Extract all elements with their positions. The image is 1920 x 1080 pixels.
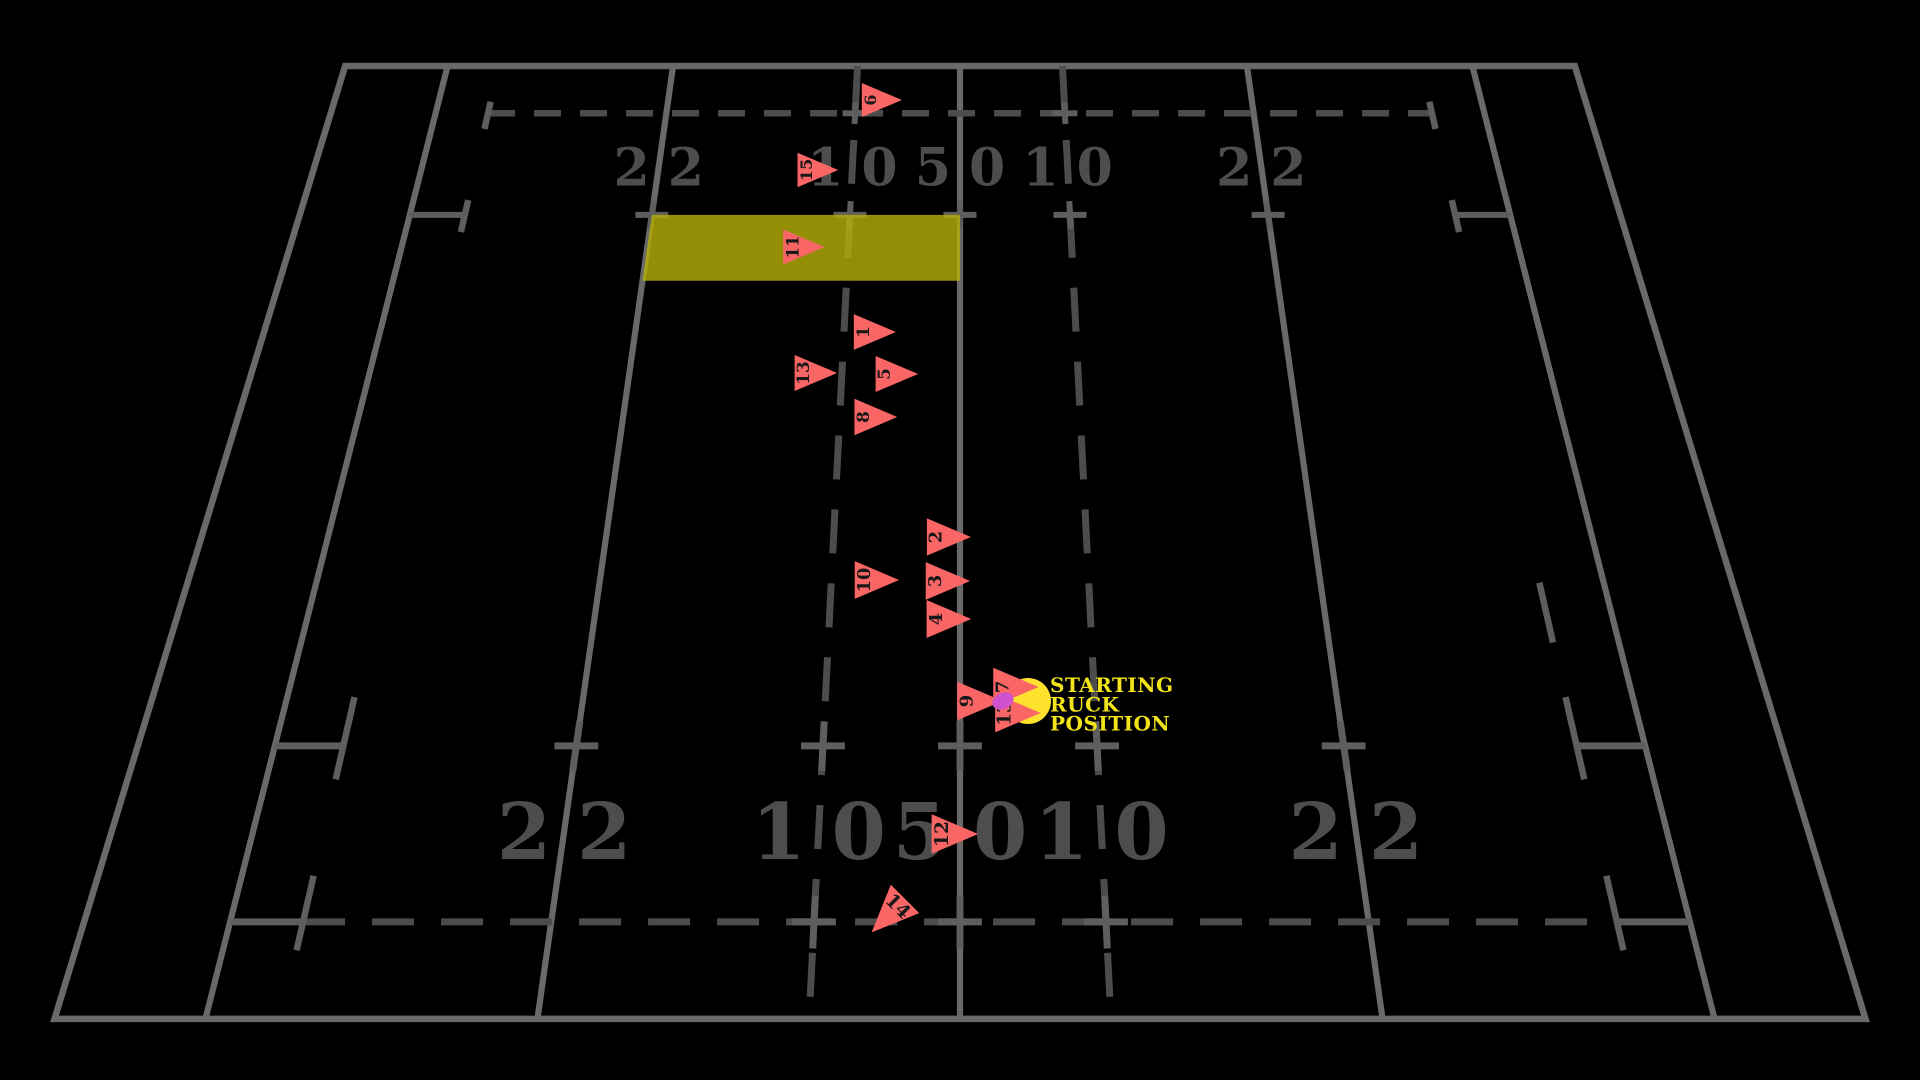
field-label-22-left-near: 2 bbox=[497, 787, 551, 878]
field-label-10-right-far: 0 bbox=[1077, 138, 1113, 199]
field-label-50-far: 5 bbox=[915, 138, 951, 199]
player-number: 3 bbox=[925, 575, 946, 587]
tick-cross bbox=[822, 721, 825, 771]
field-label-10-left-near: 1 bbox=[751, 787, 805, 878]
player-number: 13 bbox=[794, 361, 814, 385]
field-label-22-right-far: 2 bbox=[1270, 138, 1306, 199]
player-number: 9 bbox=[957, 695, 978, 708]
player-number: 10 bbox=[854, 568, 875, 593]
field-label-22-left-far: 2 bbox=[668, 138, 704, 199]
field-label-10-left-near: 0 bbox=[832, 787, 886, 878]
tick-cross bbox=[813, 896, 816, 949]
player-number: 11 bbox=[782, 236, 802, 259]
player-number: 5 bbox=[875, 368, 895, 380]
ruck-annotation-line-3: POSITION bbox=[1050, 712, 1170, 736]
field-label-22-right-far: 2 bbox=[1216, 138, 1252, 199]
tick-cross bbox=[1105, 896, 1108, 949]
field-label-22-left-far: 2 bbox=[614, 138, 650, 199]
player-number: 2 bbox=[927, 531, 947, 543]
field-label-22-right-near: 2 bbox=[1369, 787, 1423, 878]
tick-cross bbox=[1064, 103, 1065, 124]
tick-cross bbox=[855, 103, 856, 124]
player-number: 8 bbox=[854, 411, 874, 423]
player-number: 15 bbox=[797, 159, 816, 182]
player-number: 4 bbox=[926, 613, 947, 625]
field-label-50-far: 0 bbox=[969, 138, 1005, 199]
tick-cross bbox=[1266, 201, 1270, 229]
player-number: 6 bbox=[861, 94, 880, 105]
field-label-10-left-far: 0 bbox=[861, 138, 897, 199]
field-label-22-left-near: 2 bbox=[577, 787, 631, 878]
player-number: 12 bbox=[931, 821, 953, 847]
player-number: 7 bbox=[993, 681, 1014, 694]
field-label-10-right-near: 0 bbox=[1114, 787, 1168, 878]
player-number: 1 bbox=[853, 326, 873, 338]
pitch-canvas: 2210501022221050102261511113582103479131… bbox=[0, 0, 1920, 1080]
field-label-10-right-near: 1 bbox=[1034, 787, 1088, 878]
tick-cross bbox=[1069, 201, 1070, 229]
field-label-10-right-far: 1 bbox=[1022, 138, 1058, 199]
rugby-pitch-visualization: 2210501022221050102261511113582103479131… bbox=[0, 0, 1920, 1080]
field-label-50-near: 0 bbox=[973, 787, 1027, 878]
field-label-22-right-near: 2 bbox=[1289, 787, 1343, 878]
